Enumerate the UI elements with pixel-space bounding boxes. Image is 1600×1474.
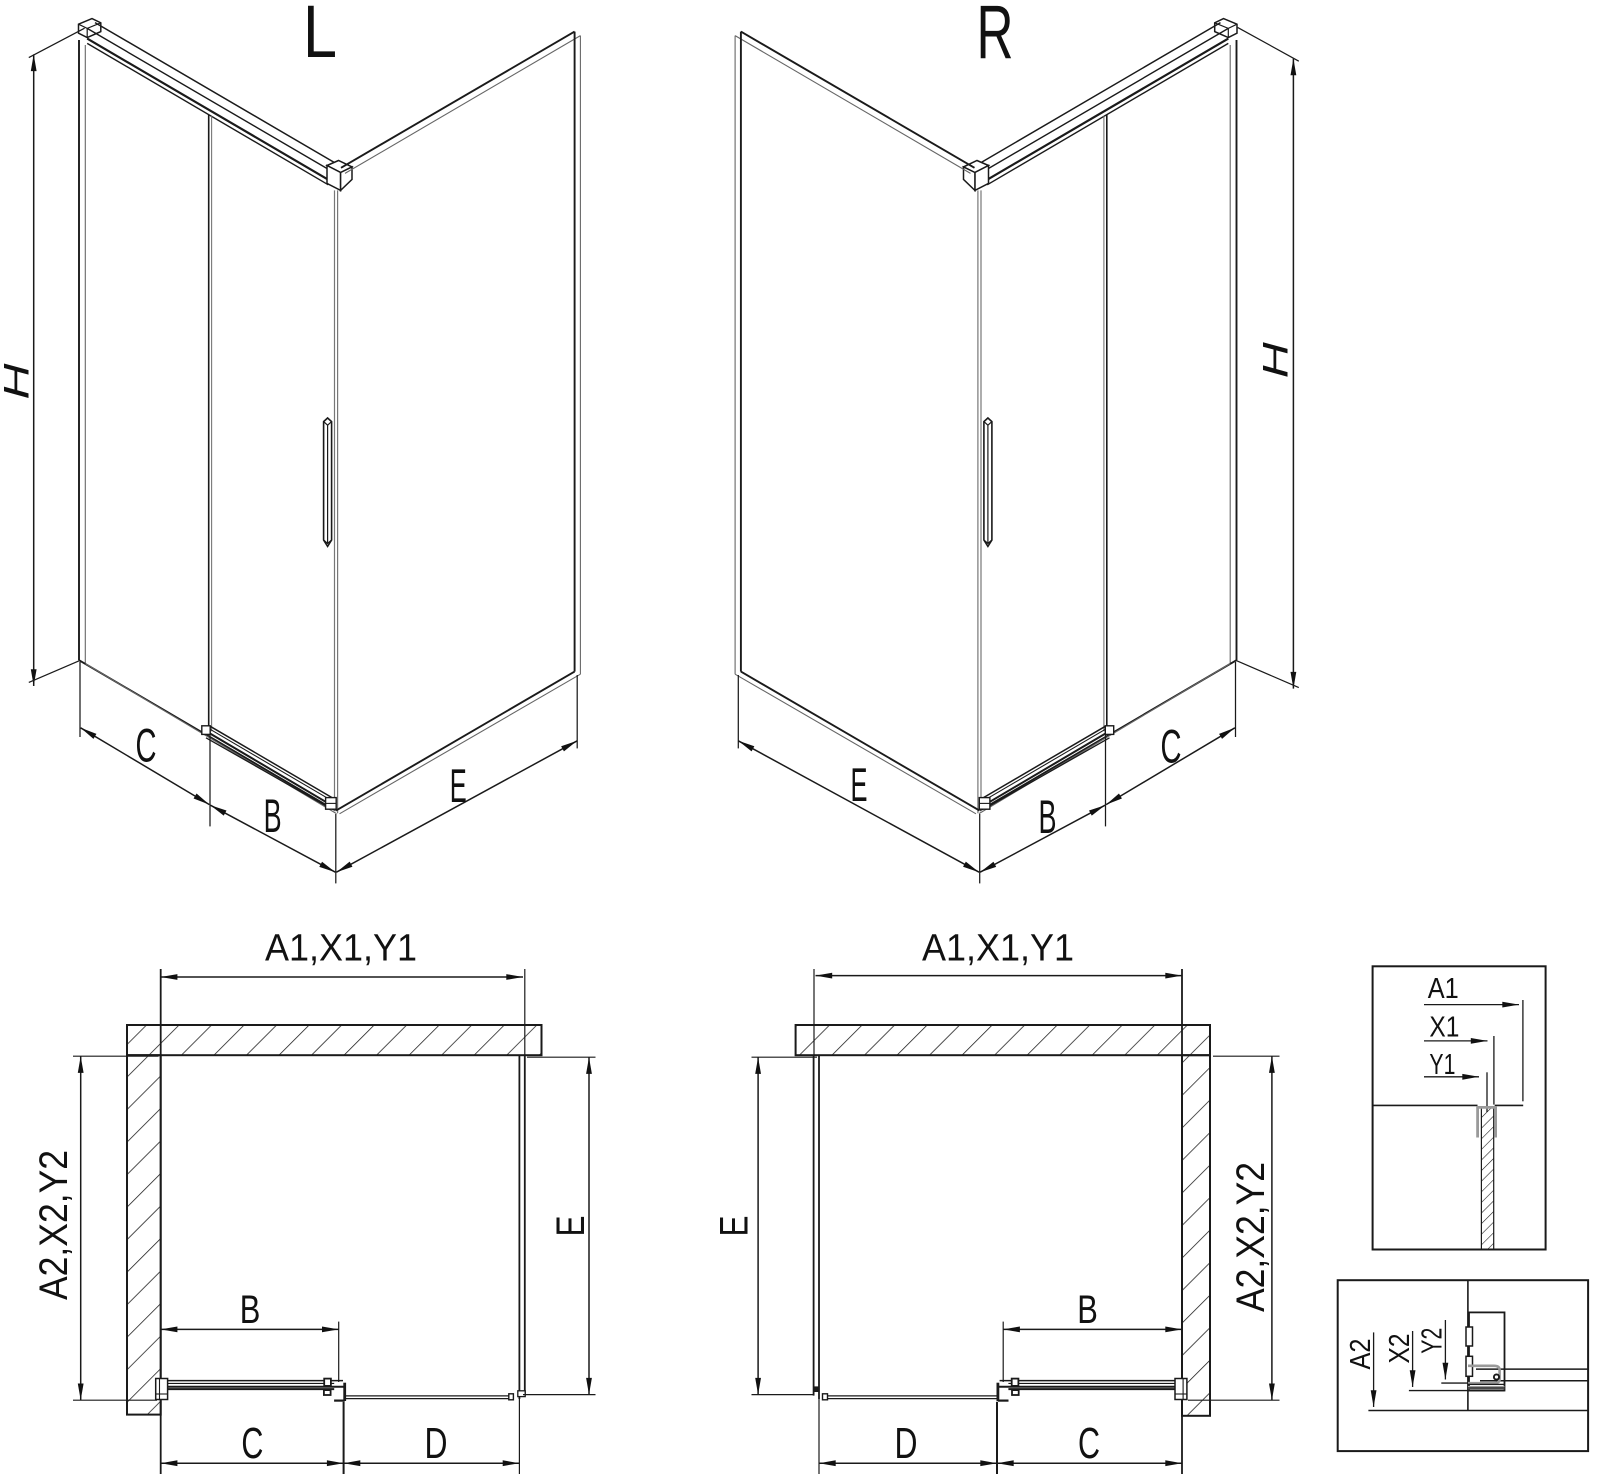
svg-text:B: B — [1039, 790, 1057, 843]
svg-text:E: E — [549, 1216, 593, 1237]
svg-text:D: D — [425, 1419, 448, 1468]
svg-text:E: E — [713, 1216, 757, 1237]
svg-text:H: H — [0, 362, 37, 399]
svg-text:C: C — [241, 1419, 263, 1468]
svg-text:A2,X2,Y2: A2,X2,Y2 — [32, 1150, 76, 1300]
svg-text:A1: A1 — [1428, 973, 1459, 1005]
svg-text:D: D — [895, 1419, 918, 1468]
svg-text:R: R — [977, 0, 1014, 76]
svg-text:L: L — [303, 0, 337, 73]
svg-text:A2,X2,Y2: A2,X2,Y2 — [1229, 1162, 1273, 1312]
svg-text:Y1: Y1 — [1429, 1049, 1455, 1081]
svg-text:E: E — [450, 759, 467, 812]
svg-text:A1,X1,Y1: A1,X1,Y1 — [265, 928, 417, 970]
svg-text:B: B — [264, 789, 282, 842]
svg-text:C: C — [1161, 720, 1182, 773]
svg-text:A1,X1,Y1: A1,X1,Y1 — [922, 928, 1074, 970]
svg-text:B: B — [240, 1288, 261, 1332]
svg-text:X1: X1 — [1429, 1012, 1459, 1044]
svg-text:H: H — [1257, 341, 1296, 378]
svg-text:Y2: Y2 — [1417, 1328, 1449, 1354]
svg-text:B: B — [1077, 1288, 1098, 1332]
svg-text:A2: A2 — [1345, 1339, 1377, 1370]
svg-text:C: C — [136, 719, 157, 772]
svg-text:C: C — [1078, 1419, 1100, 1468]
svg-text:X2: X2 — [1384, 1334, 1416, 1364]
svg-text:E: E — [851, 758, 868, 811]
